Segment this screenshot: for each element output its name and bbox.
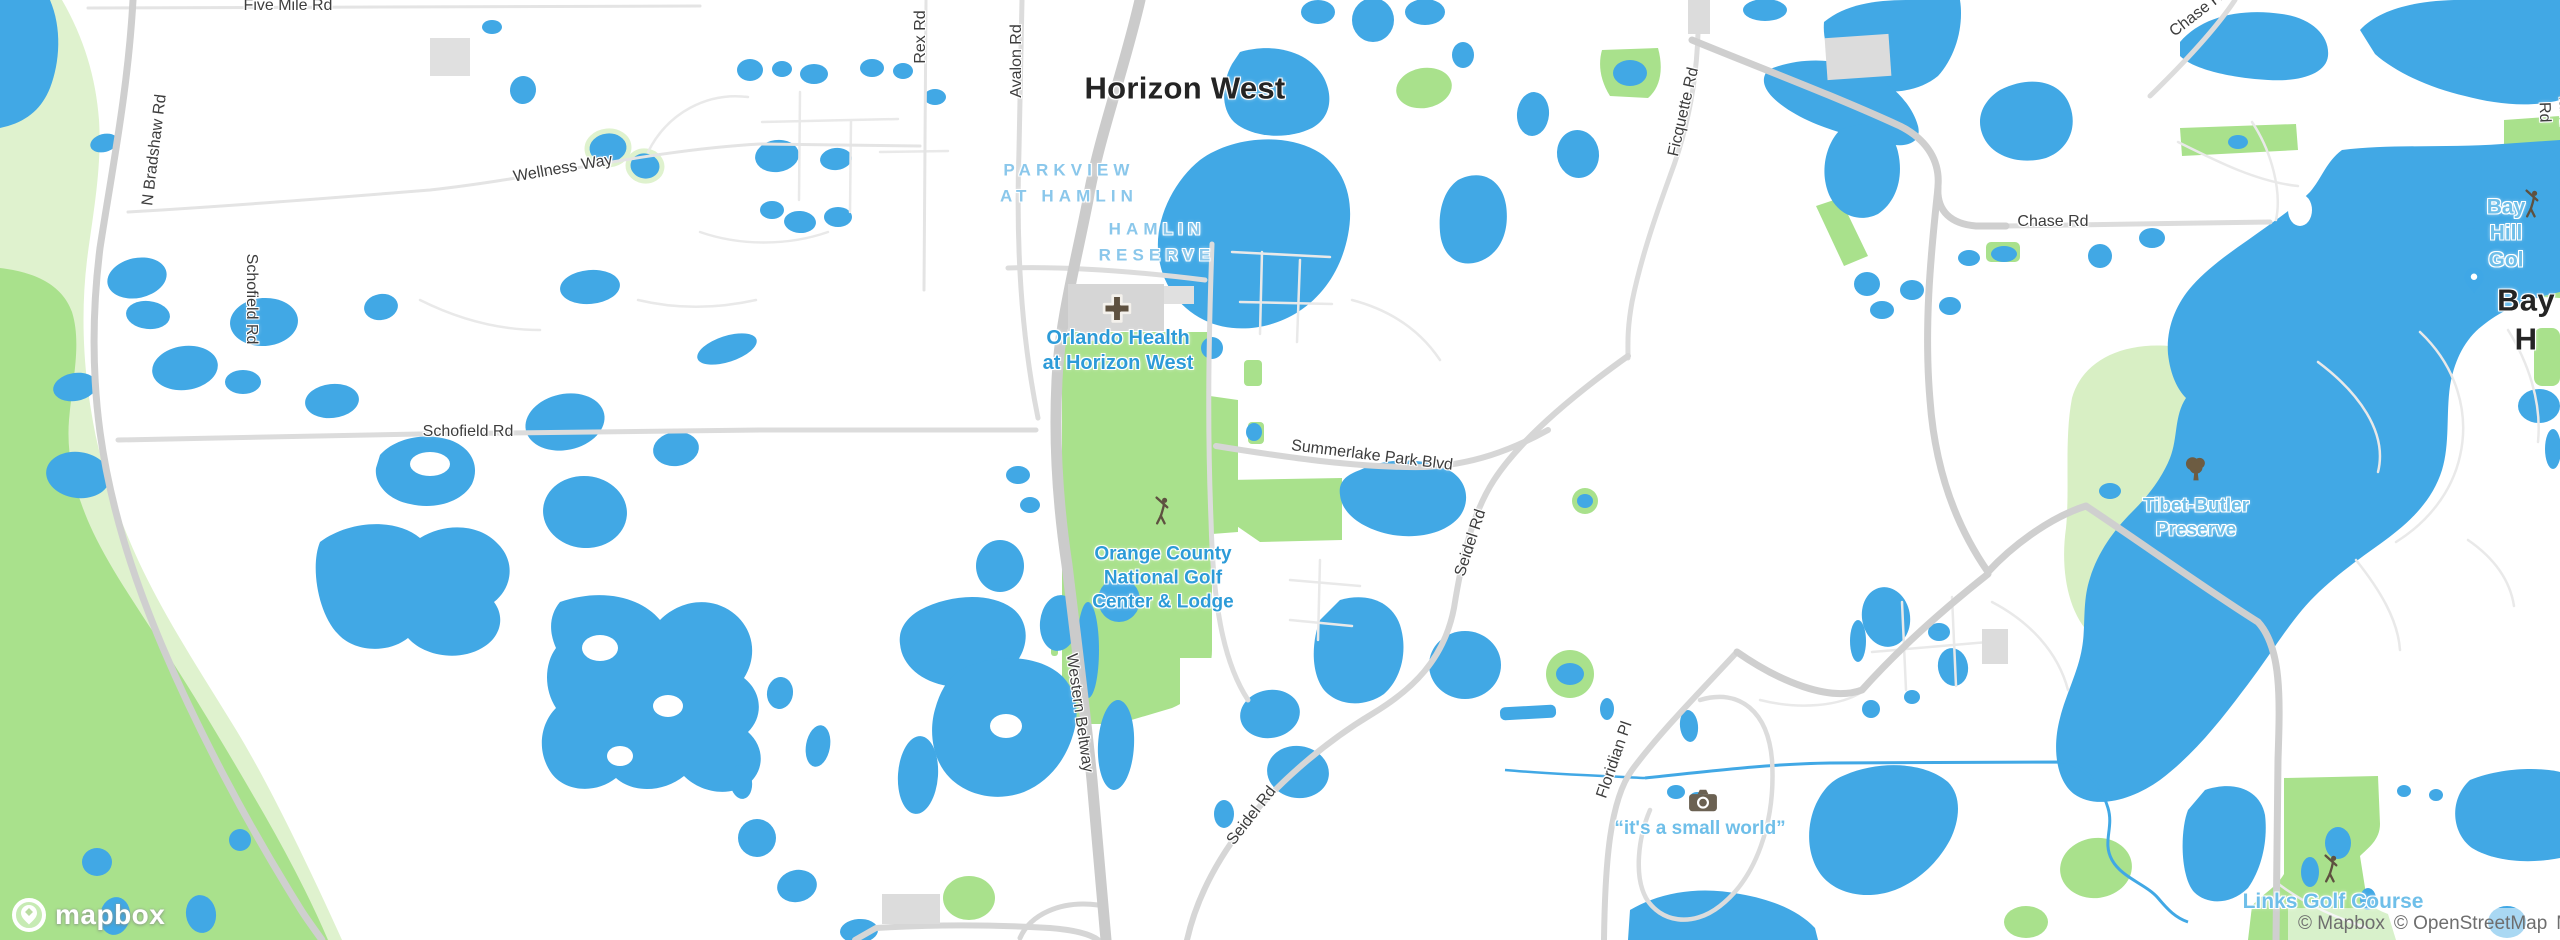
map-canvas[interactable]: Horizon West Bay H PARKVIEW AT HAMLIN HA…: [0, 0, 2560, 940]
golf-course-icon: [2520, 189, 2546, 224]
golf-course-icon: [2319, 854, 2345, 889]
attribution-mapbox-link[interactable]: © Mapbox: [2298, 913, 2385, 934]
location-pin-icon: [2462, 267, 2486, 300]
road-avalon: [1018, 0, 1038, 418]
road-rex: [924, 0, 926, 290]
camera-icon: [1688, 789, 1718, 818]
hospital-cross-icon: [1102, 294, 1132, 329]
park-tree-icon: [2183, 456, 2209, 487]
map-attribution: © Mapbox© OpenStreetMapMap: [2288, 908, 2560, 940]
lake-small-world-east: [1809, 765, 1958, 895]
water-layer: [0, 0, 2560, 940]
mapbox-logo-text: mapbox: [55, 899, 165, 931]
mapbox-pin-icon: [10, 896, 48, 934]
basemap-svg: [0, 0, 2560, 940]
road-five-mile: [88, 6, 700, 8]
lake-hamlin-north: [1224, 48, 1329, 136]
road-summerlake-park-blvd: [1216, 430, 1548, 467]
attribution-osm-link[interactable]: © OpenStreetMap: [2394, 913, 2547, 934]
lake-summerlake: [1340, 460, 1466, 536]
attribution-improve-link[interactable]: Map: [2556, 913, 2560, 934]
mapbox-logo[interactable]: mapbox: [10, 896, 165, 934]
road-wellness-way: [128, 144, 920, 212]
collector-roads: [88, 0, 926, 290]
golf-course-icon: [1150, 496, 1176, 531]
road-chase: [2004, 222, 2270, 226]
